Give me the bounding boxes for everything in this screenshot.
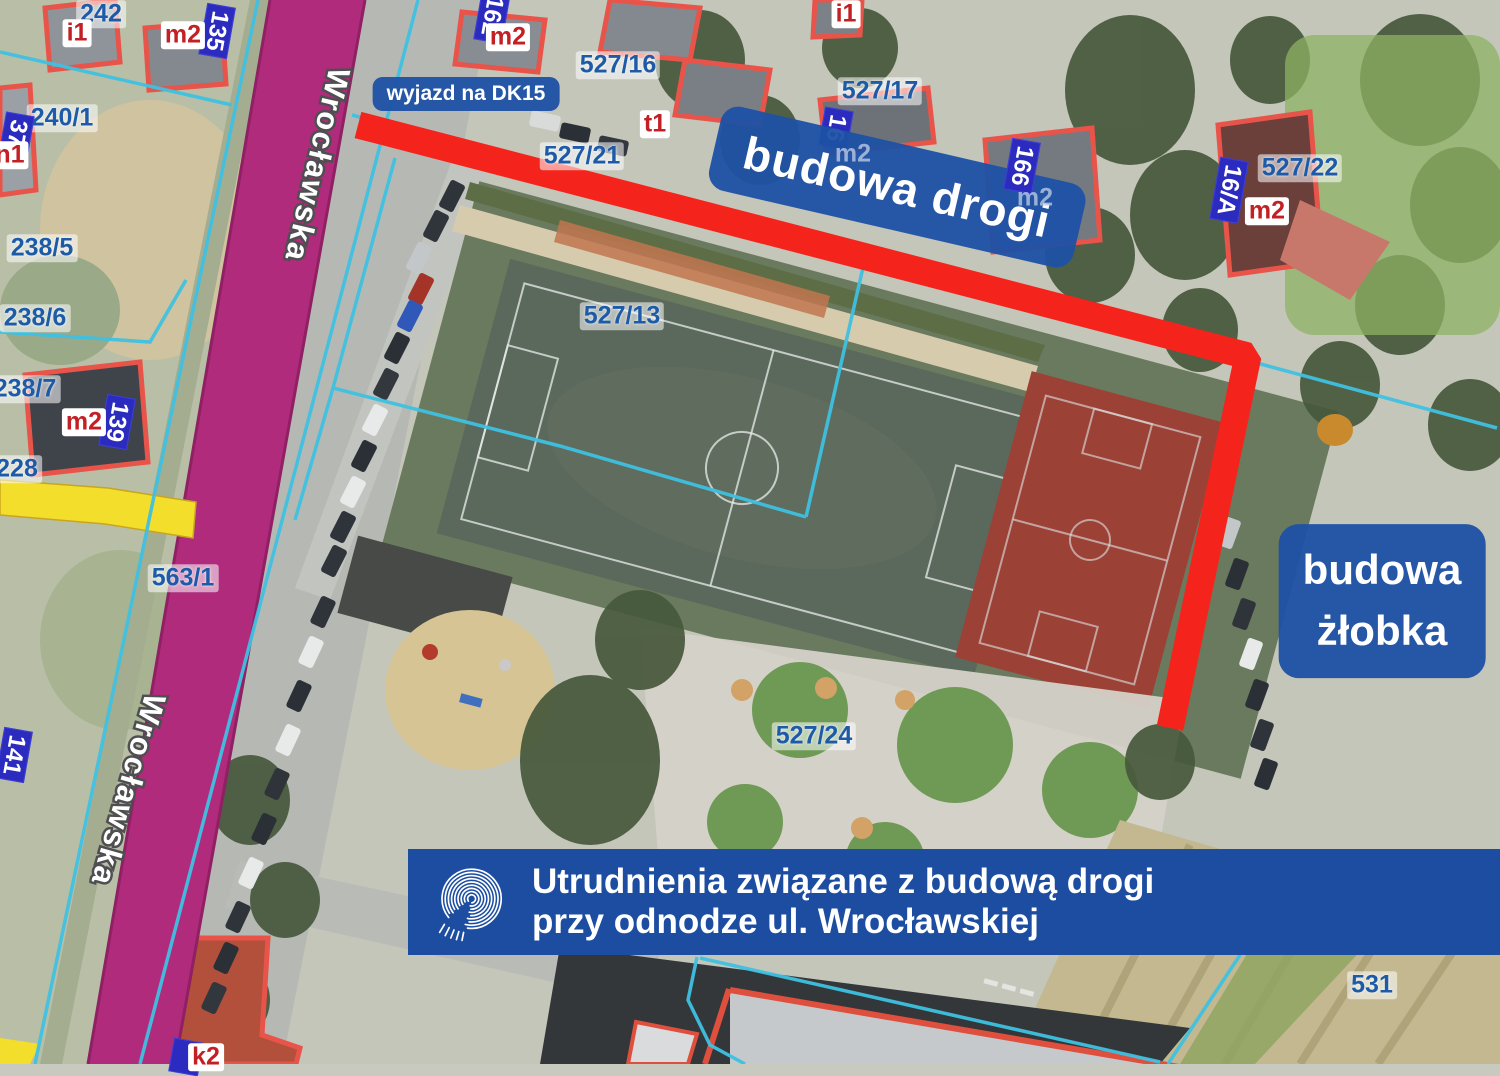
building-code: t1 [640,110,670,138]
parcel-label: 527/24 [772,722,856,750]
parcel-label: 240/1 [27,104,98,132]
parcel-label: 238/5 [7,234,78,262]
building-code: n1 [0,141,29,169]
parcel-label: 527/21 [540,142,624,170]
parcel-label: 527/17 [838,77,922,105]
building-code: m2 [486,23,530,51]
parcel-label: 527/22 [1258,154,1342,182]
parcel-label: 238/7 [0,375,60,403]
parcel-label: 238/6 [0,304,70,332]
nursery-callout-line2: żłobka [1303,601,1462,662]
building-code: m2 [161,21,205,49]
banner-line1: Utrudnienia związane z budową drogi [532,862,1154,902]
parcel-label: 563/1 [148,564,219,592]
banner-line2: przy odnodze ul. Wrocławskiej [532,902,1154,942]
parcel-label: 531 [1347,971,1397,999]
city-logo-icon [430,862,510,942]
building-code: i1 [63,19,92,47]
exit-callout: wyjazd na DK15 [373,77,560,111]
nursery-callout-line1: budowa [1303,540,1462,601]
parcel-label: 527/16 [576,51,660,79]
building-code: m2 [62,408,106,436]
nursery-construction-callout: budowa żłobka [1279,524,1486,678]
parcel-label: 527/13 [580,302,664,330]
building-code: m2 [1013,184,1057,212]
building-code: i1 [832,0,861,28]
title-banner: Utrudnienia związane z budową drogi przy… [408,849,1500,955]
building-code: m2 [831,140,875,168]
building-code: m2 [1245,197,1289,225]
building-code: k2 [188,1043,224,1071]
parcel-label: 228 [0,455,42,483]
